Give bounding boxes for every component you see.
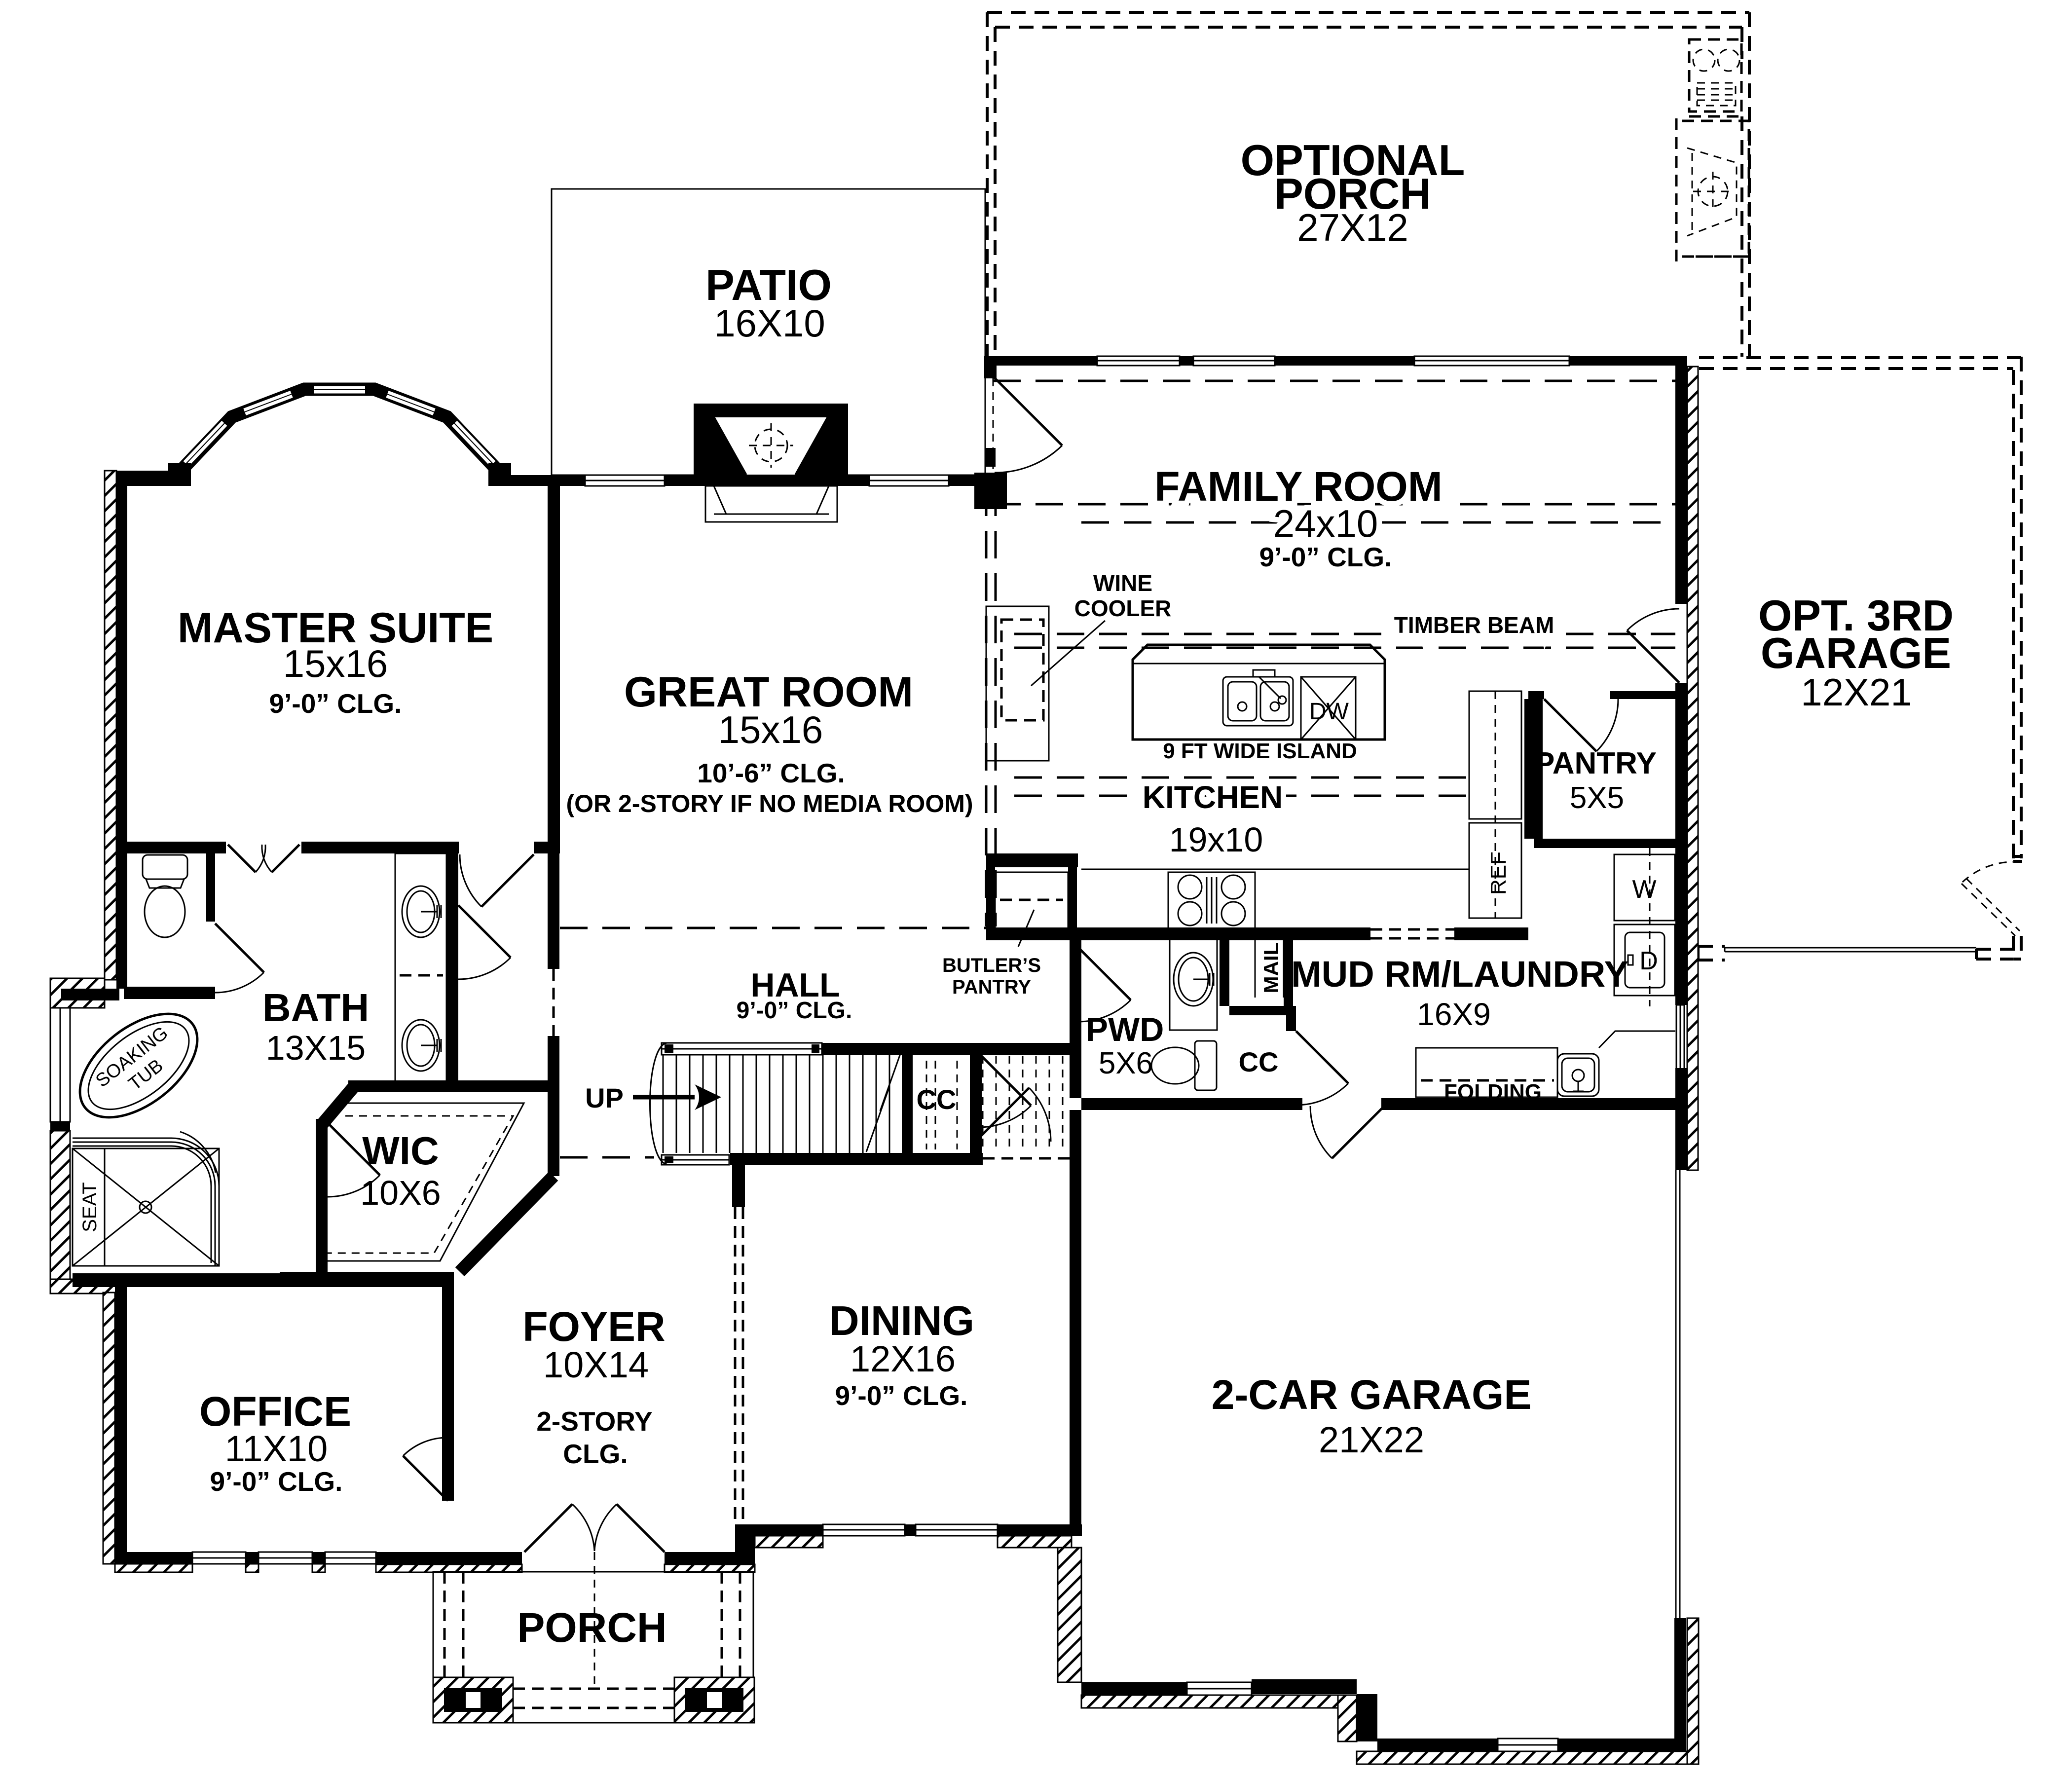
svg-text:(OR 2-STORY IF NO MEDIA ROOM): (OR 2-STORY IF NO MEDIA ROOM) (566, 790, 973, 817)
svg-text:5X5: 5X5 (1570, 781, 1624, 815)
svg-text:SEAT: SEAT (79, 1182, 101, 1232)
svg-text:19x10: 19x10 (1169, 820, 1263, 859)
svg-text:WIC: WIC (362, 1129, 439, 1173)
svg-text:DW: DW (1309, 699, 1349, 725)
svg-text:9’-0” CLG.: 9’-0” CLG. (269, 688, 402, 719)
svg-text:5X6: 5X6 (1099, 1046, 1153, 1080)
svg-text:DINING: DINING (829, 1297, 974, 1344)
svg-text:10X6: 10X6 (360, 1174, 441, 1212)
svg-text:2-CAR GARAGE: 2-CAR GARAGE (1212, 1371, 1532, 1418)
svg-text:UP: UP (585, 1082, 624, 1113)
svg-text:2-STORY: 2-STORY (536, 1406, 652, 1437)
svg-text:9’-0” CLG.: 9’-0” CLG. (737, 998, 852, 1024)
svg-text:FOYER: FOYER (522, 1303, 665, 1350)
svg-text:9’-0” CLG.: 9’-0” CLG. (835, 1380, 968, 1411)
svg-text:9’-0” CLG.: 9’-0” CLG. (1259, 542, 1392, 572)
svg-text:12X21: 12X21 (1801, 670, 1912, 714)
svg-text:24x10: 24x10 (1273, 502, 1378, 545)
svg-text:OFFICE: OFFICE (199, 1388, 351, 1435)
svg-text:W: W (1632, 875, 1656, 904)
svg-text:PORCH: PORCH (517, 1604, 666, 1651)
svg-text:CC: CC (1239, 1046, 1279, 1077)
svg-text:KITCHEN: KITCHEN (1143, 779, 1283, 815)
svg-text:16X10: 16X10 (714, 301, 825, 345)
svg-text:11X10: 11X10 (225, 1428, 328, 1469)
svg-text:COOLER: COOLER (1074, 595, 1172, 621)
svg-text:MAIL: MAIL (1259, 943, 1283, 994)
svg-text:D: D (1639, 947, 1658, 975)
svg-text:9 FT WIDE ISLAND: 9 FT WIDE ISLAND (1163, 739, 1357, 763)
svg-text:9’-0” CLG.: 9’-0” CLG. (210, 1466, 343, 1497)
svg-text:BATH: BATH (262, 986, 369, 1030)
svg-text:15x16: 15x16 (718, 708, 823, 751)
svg-text:12X16: 12X16 (850, 1338, 956, 1379)
svg-text:13X15: 13X15 (266, 1029, 366, 1067)
svg-text:CLG.: CLG. (563, 1439, 628, 1469)
svg-text:15x16: 15x16 (283, 642, 388, 685)
svg-text:27X12: 27X12 (1297, 206, 1408, 249)
svg-text:10X14: 10X14 (543, 1344, 649, 1385)
svg-text:PANTRY: PANTRY (1534, 746, 1657, 780)
svg-text:16X9: 16X9 (1417, 997, 1490, 1032)
svg-text:PANTRY: PANTRY (952, 976, 1031, 998)
svg-text:REF: REF (1486, 851, 1511, 895)
svg-text:WINE: WINE (1093, 570, 1152, 596)
svg-text:10’-6” CLG.: 10’-6” CLG. (697, 758, 845, 788)
svg-text:TIMBER BEAM: TIMBER BEAM (1394, 612, 1554, 638)
svg-text:MUD RM/LAUNDRY: MUD RM/LAUNDRY (1291, 954, 1628, 995)
svg-text:21X22: 21X22 (1319, 1419, 1424, 1460)
svg-text:BUTLER’S: BUTLER’S (942, 955, 1041, 976)
svg-text:CC: CC (917, 1084, 957, 1115)
svg-text:PWD: PWD (1086, 1011, 1164, 1048)
